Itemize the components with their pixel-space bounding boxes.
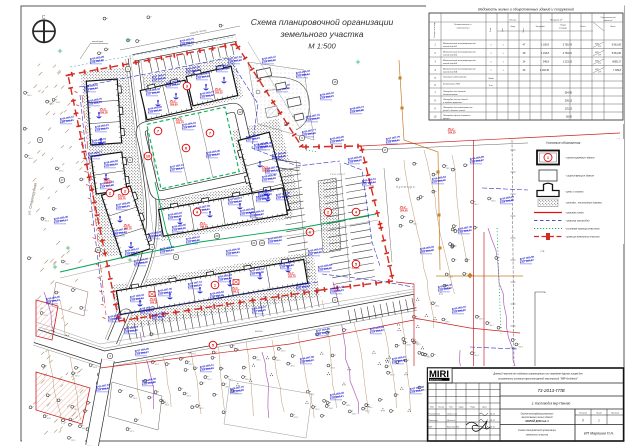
svg-text:283,0: 283,0 — [256, 360, 261, 362]
svg-text:Гостевые автостоянки: Гостевые автостоянки — [443, 77, 467, 79]
svg-text:Всего: Всего — [523, 28, 525, 33]
svg-text:объем м³: объем м³ — [604, 19, 613, 22]
svg-text:284,2: 284,2 — [415, 342, 420, 344]
svg-text:Строительный: Строительный — [600, 16, 616, 19]
svg-text:283,0: 283,0 — [406, 345, 411, 347]
svg-text:286,36: 286,36 — [150, 301, 158, 304]
svg-text:286,11: 286,11 — [232, 290, 240, 293]
svg-text:209,13: 209,13 — [565, 100, 573, 103]
svg-text:15: 15 — [334, 80, 337, 84]
svg-text:284,3: 284,3 — [82, 428, 87, 430]
svg-text:М 1:500: М 1:500 — [308, 42, 336, 51]
svg-text:MIRI: MIRI — [429, 369, 449, 379]
svg-text:282,0: 282,0 — [281, 351, 286, 353]
svg-text:284,3: 284,3 — [365, 411, 370, 413]
svg-text:Разработал: Разработал — [429, 414, 442, 416]
svg-text:жилой дом №2: жилой дом №2 — [442, 54, 458, 57]
svg-text:№док: №док — [459, 406, 464, 409]
svg-text:Кварт: Кварт — [511, 26, 516, 28]
svg-text:21: 21 — [253, 241, 256, 245]
svg-text:Всего: Всего — [611, 26, 616, 28]
svg-text:ИП Маряшев П.Н.: ИП Маряшев П.Н. — [584, 432, 614, 436]
svg-text:С: С — [42, 15, 46, 21]
svg-text:Площадки для игр детей: Площадки для игр детей — [443, 98, 468, 101]
svg-text:4 шт: 4 шт — [489, 85, 493, 87]
svg-text:287,2: 287,2 — [192, 354, 197, 356]
svg-text:- граница застройки: - граница застройки — [565, 220, 590, 223]
svg-text:деятельности: деятельности — [443, 93, 458, 96]
svg-text:Листов: Листов — [610, 413, 620, 415]
svg-text:Наименование и: Наименование и — [455, 24, 473, 26]
svg-text:Общая: Общая — [560, 25, 566, 27]
svg-text:1 223,19: 1 223,19 — [563, 61, 573, 64]
svg-text:земельного участка: земельного участка — [525, 435, 549, 437]
svg-text:Площадки для детской: Площадки для детской — [443, 90, 466, 93]
svg-text:06.13: 06.13 — [490, 420, 495, 422]
svg-text:- проектируемые здания: - проектируемые здания — [565, 157, 595, 160]
svg-text:283,1: 283,1 — [352, 413, 357, 415]
svg-text:286,5: 286,5 — [449, 276, 454, 278]
svg-text:284,60: 284,60 — [400, 209, 408, 212]
svg-text:287,4: 287,4 — [59, 170, 64, 172]
svg-text:286,28: 286,28 — [100, 111, 108, 114]
svg-text:287,3: 287,3 — [47, 418, 52, 420]
svg-text:ARCHITECTS: ARCHITECTS — [430, 378, 442, 381]
svg-text:ЖИЛОЙ ДОМ №1-4: ЖИЛОЙ ДОМ №1-4 — [525, 420, 549, 423]
svg-text:28: 28 — [216, 234, 219, 238]
svg-text:34: 34 — [97, 248, 100, 252]
svg-text:73-2013-ГПВ: 73-2013-ГПВ — [537, 388, 564, 393]
svg-text:1: 1 — [547, 156, 549, 160]
svg-text:282,2: 282,2 — [199, 408, 204, 410]
svg-text:СТР: СТР — [598, 71, 601, 73]
svg-text:1 150,8: 1 150,8 — [541, 44, 550, 47]
svg-text:285,74: 285,74 — [176, 121, 184, 124]
svg-text:выгон: выгон — [255, 330, 263, 333]
svg-text:2 782,43: 2 782,43 — [563, 44, 573, 47]
svg-text:283,0: 283,0 — [65, 264, 70, 266]
svg-text:280,5: 280,5 — [329, 408, 334, 410]
svg-text:Малоэтажный многоквартирный: Малоэтажный многоквартирный — [443, 68, 476, 71]
svg-text:Кол.уч: Кол.уч — [438, 407, 444, 409]
svg-text:287,2: 287,2 — [83, 310, 88, 312]
svg-text:Малоэтажный многоквартирный: Малоэтажный многоквартирный — [443, 51, 476, 54]
svg-text:5 661,65: 5 661,65 — [612, 44, 622, 47]
svg-text:286,60: 286,60 — [200, 225, 208, 228]
svg-text:280,6: 280,6 — [290, 366, 295, 368]
svg-text:125,23: 125,23 — [565, 108, 573, 111]
svg-text:285,35: 285,35 — [215, 91, 223, 94]
svg-text:287,0: 287,0 — [75, 375, 80, 377]
svg-text:площадь: площадь — [559, 28, 567, 30]
svg-text:с е н о к о с: с е н о к о с — [330, 172, 346, 176]
svg-text:7: 7 — [209, 131, 211, 136]
svg-text:554,98: 554,98 — [565, 92, 573, 95]
svg-text:287,0: 287,0 — [71, 440, 76, 442]
svg-text:и отдыха взрослых: и отдыха взрослых — [443, 101, 463, 104]
svg-text:жилой дом №3: жилой дом №3 — [442, 62, 458, 65]
svg-text:285,4: 285,4 — [474, 355, 479, 357]
svg-text:Площадки для хозяйственных: Площадки для хозяйственных — [443, 106, 473, 109]
svg-text:- существующие здания: - существующие здания — [565, 175, 594, 178]
svg-text:06.13: 06.13 — [490, 427, 495, 429]
svg-text:обозначение: обозначение — [457, 28, 471, 30]
svg-text:Схема планировочной организаци: Схема планировочной организации — [518, 429, 557, 432]
svg-text:285,6: 285,6 — [165, 404, 170, 406]
svg-text:285,4: 285,4 — [427, 357, 432, 359]
svg-text:283,2: 283,2 — [187, 396, 192, 398]
svg-text:284,3: 284,3 — [49, 104, 54, 106]
svg-text:- проезды , пешеходные дорожк: - проезды , пешеходные дорожки — [565, 202, 603, 205]
svg-text:7: 7 — [157, 129, 159, 134]
svg-text:Группа многофункциональных: Группа многофункциональных — [521, 413, 555, 416]
svg-text:СТВ: СТВ — [540, 251, 545, 253]
svg-text:Контейнеры ТБО: Контейнеры ТБО — [443, 83, 460, 86]
svg-text:Площадь м²: Площадь м² — [550, 19, 563, 22]
svg-text:284,6: 284,6 — [93, 367, 98, 369]
svg-text:282,1: 282,1 — [189, 364, 194, 366]
svg-text:2 783,81: 2 783,81 — [563, 52, 573, 55]
svg-text:1 153,8: 1 153,8 — [541, 52, 550, 55]
svg-text:38,45: 38,45 — [566, 116, 573, 119]
svg-text:6085,17: 6085,17 — [612, 61, 621, 64]
svg-text:285,0: 285,0 — [28, 158, 33, 160]
svg-text:06.13: 06.13 — [490, 414, 495, 416]
svg-text:целей и бельев. сетей: целей и бельев. сетей — [443, 109, 466, 112]
svg-text:1 100,36: 1 100,36 — [540, 69, 550, 72]
svg-text:284,0: 284,0 — [27, 95, 32, 97]
svg-text:Условные обозначения: Условные обозначения — [546, 141, 581, 145]
svg-text:Малоэтажный многоквартирный: Малоэтажный многоквартирный — [443, 42, 476, 45]
svg-text:Номер по плану: Номер по плану — [434, 23, 436, 38]
svg-text:жилой дом: жилой дом — [92, 40, 104, 43]
svg-text:285,78: 285,78 — [124, 227, 132, 230]
svg-text:Чибис С.А.: Чибис С.А. — [447, 413, 458, 416]
svg-text:281,5: 281,5 — [155, 364, 160, 366]
svg-text:ГАП: ГАП — [428, 426, 432, 429]
svg-text:283,4: 283,4 — [56, 102, 61, 104]
svg-text:280,2: 280,2 — [416, 344, 421, 346]
svg-text:жилой дом №1: жилой дом №1 — [442, 45, 457, 48]
svg-text:малоэтажных жилых зданий: малоэтажных жилых зданий — [521, 416, 553, 419]
svg-text:12: 12 — [239, 110, 242, 114]
svg-text:280,6: 280,6 — [368, 407, 373, 409]
svg-text:- граница земельного участка: - граница земельного участка — [565, 236, 600, 239]
svg-text:286,3: 286,3 — [518, 346, 523, 348]
svg-text:17: 17 — [61, 178, 64, 182]
svg-text:Денисов: Денисов — [446, 420, 455, 422]
svg-text:Кол-во: Кол-во — [510, 20, 518, 22]
svg-text:Лист: Лист — [449, 407, 453, 409]
svg-text:письменного согласия архитекту: письменного согласия архитектурной масте… — [498, 378, 578, 381]
svg-text:Лист: Лист — [595, 413, 602, 415]
svg-text:жилой дом №4: жилой дом №4 — [442, 71, 458, 74]
svg-text:282,2: 282,2 — [474, 204, 479, 206]
svg-text:34м/м: 34м/м — [488, 78, 494, 80]
svg-text:10: 10 — [146, 154, 150, 159]
svg-text:Схема планировочной организаци: Схема планировочной организации — [251, 17, 394, 27]
svg-text:285,9: 285,9 — [276, 360, 281, 362]
svg-text:283,4: 283,4 — [163, 403, 168, 405]
svg-text:281,9: 281,9 — [479, 319, 484, 321]
svg-text:545,8: 545,8 — [543, 61, 550, 64]
svg-text:Подп: Подп — [470, 407, 475, 409]
svg-text:земельного участка: земельного участка — [280, 29, 364, 39]
svg-text:282,2: 282,2 — [413, 224, 418, 226]
svg-text:285,76: 285,76 — [118, 197, 126, 200]
svg-text:7 029,8: 7 029,8 — [613, 69, 622, 72]
svg-text:283,9: 283,9 — [445, 322, 450, 324]
svg-text:мусора: мусора — [443, 118, 451, 120]
svg-text:285,79: 285,79 — [288, 275, 296, 278]
svg-text:286,55: 286,55 — [448, 131, 456, 134]
svg-text:Стадия: Стадия — [579, 412, 588, 415]
svg-text:285,87: 285,87 — [262, 169, 270, 172]
svg-text:286,6: 286,6 — [491, 201, 496, 203]
svg-text:284,4: 284,4 — [489, 325, 494, 327]
svg-text:287,1: 287,1 — [130, 431, 135, 433]
svg-text:- урны и газоны: - урны и газоны — [565, 191, 584, 194]
svg-text:283,6: 283,6 — [346, 405, 351, 407]
svg-text:2: 2 — [597, 419, 600, 423]
svg-text:СТР: СТР — [598, 54, 601, 56]
svg-text:- условная граница участков: - условная граница участков — [565, 228, 600, 231]
svg-text:40: 40 — [261, 241, 264, 245]
svg-text:282,4: 282,4 — [133, 398, 138, 400]
svg-text:г. Кисловодск мкр Паново: г. Кисловодск мкр Паново — [532, 402, 571, 406]
svg-text:Проверил: Проверил — [429, 420, 439, 422]
svg-text:СТР: СТР — [598, 63, 601, 65]
svg-text:Застройки: Застройки — [535, 25, 544, 28]
svg-text:285,6: 285,6 — [435, 305, 440, 307]
svg-text:Ермаков И.В.: Ермаков И.В. — [447, 427, 460, 429]
svg-text:п у с т ы р ь: п у с т ы р ь — [396, 185, 415, 189]
svg-text:Малоэтажный многоквартирный: Малоэтажный многоквартирный — [443, 59, 476, 62]
svg-text:283,6: 283,6 — [330, 368, 335, 370]
svg-text:СТР: СТР — [598, 46, 601, 48]
svg-text:- красная линия: - красная линия — [565, 212, 584, 215]
svg-text:283,1: 283,1 — [446, 168, 451, 170]
svg-text:285,7: 285,7 — [390, 375, 395, 377]
svg-text:286,4: 286,4 — [245, 379, 250, 381]
svg-text:286,97: 286,97 — [104, 181, 112, 184]
svg-text:287,5: 287,5 — [44, 221, 49, 223]
svg-text:Площадки сброса бытового: Площадки сброса бытового — [443, 114, 471, 117]
svg-text:5 661,66: 5 661,66 — [612, 52, 622, 55]
svg-text:Данный чертеж не подлежит разм: Данный чертеж не подлежит размещению или… — [492, 373, 583, 376]
svg-text:Ведомость жилых и общественных: Ведомость жилых и общественных зданий и … — [478, 8, 573, 12]
svg-text:287,0: 287,0 — [315, 409, 320, 411]
svg-text:286,80: 286,80 — [170, 103, 178, 106]
svg-text:287,3: 287,3 — [294, 417, 299, 419]
svg-text:Всего: Всего — [581, 26, 586, 28]
svg-text:282,5: 282,5 — [207, 379, 212, 381]
